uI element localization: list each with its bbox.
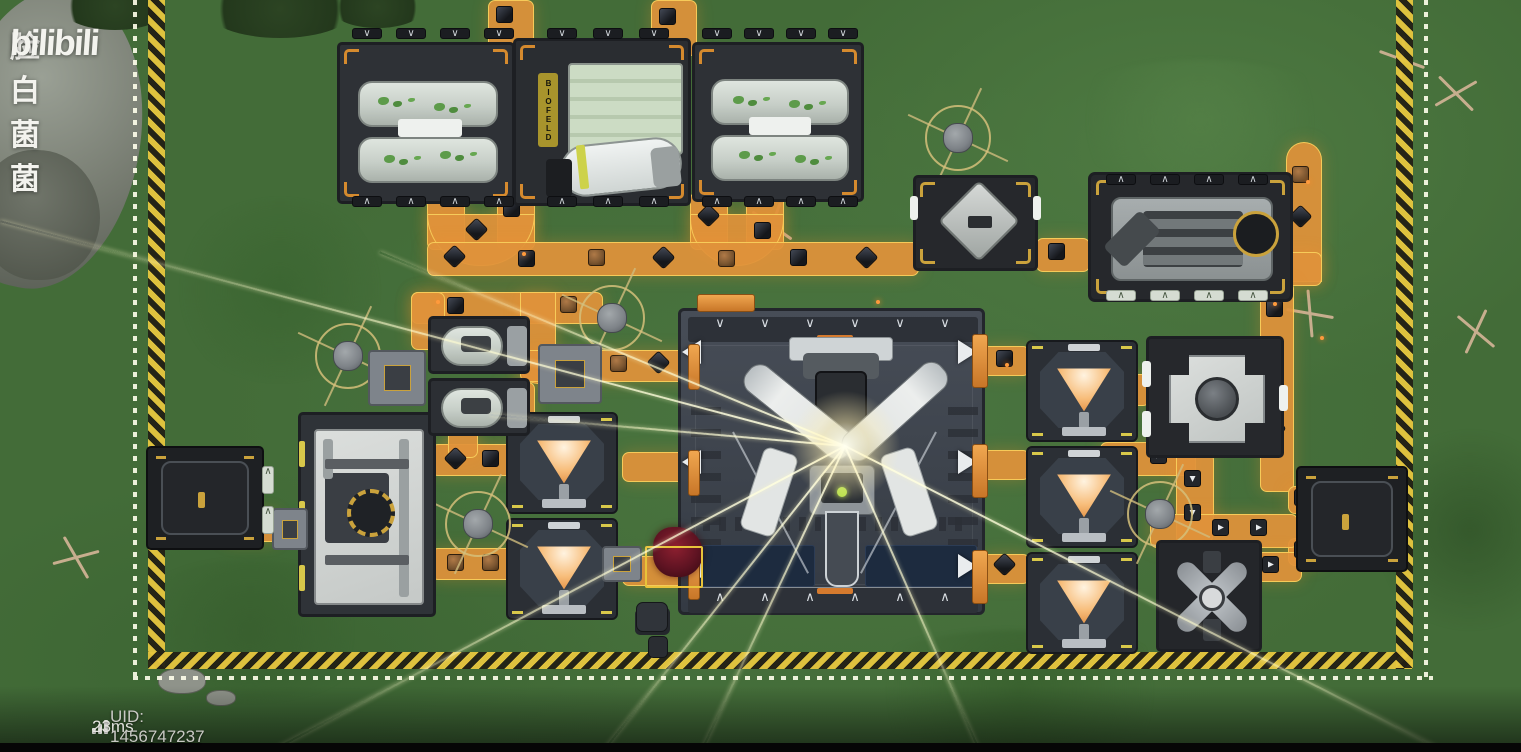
corner-bracket — [920, 249, 935, 264]
corner-tick — [1032, 433, 1043, 436]
chevron-slot: ∧ — [1194, 290, 1224, 301]
io-port[interactable] — [697, 294, 755, 312]
smelter-stem — [559, 484, 569, 500]
armature — [546, 159, 572, 197]
corner-tick — [1121, 645, 1132, 648]
smelter-port — [542, 499, 586, 508]
status-hud: 23ms UID: 1456747237 — [92, 719, 112, 734]
chevron-slot: ∨ — [795, 318, 825, 329]
player-mech[interactable] — [636, 602, 668, 632]
corner-bracket — [842, 49, 857, 64]
crate-item[interactable] — [447, 297, 464, 314]
spark-ember — [1306, 180, 1310, 184]
corner-tick — [512, 524, 523, 527]
corner-tick — [1388, 559, 1398, 562]
vent — [1203, 551, 1221, 573]
spark-ember — [522, 252, 526, 256]
perimeter-dotted-line — [1424, 0, 1428, 680]
machine-hub — [749, 117, 811, 135]
chest-lid — [1311, 481, 1393, 557]
notch — [1169, 423, 1189, 443]
crate-item[interactable] — [518, 250, 535, 267]
plant-sprouts — [739, 151, 750, 159]
chevron-slot: ∧ — [930, 592, 960, 603]
io-port[interactable] — [688, 450, 700, 496]
spark-ember — [1320, 336, 1324, 340]
junction-core — [282, 520, 298, 539]
chevron-slot: ∧ — [593, 196, 623, 207]
corner-bracket — [344, 182, 359, 197]
corner-tick — [244, 537, 254, 540]
chevron-slot: ∧ — [828, 196, 858, 207]
chevron-slot: ∧ — [1194, 174, 1224, 185]
perimeter-dotted-line — [133, 676, 1433, 680]
side-port — [910, 196, 918, 220]
chevron-slot: ∨ — [396, 28, 426, 39]
side-port — [1033, 196, 1041, 220]
belt-arrow-item[interactable]: ▲ — [1184, 470, 1201, 487]
lab-building[interactable] — [1088, 172, 1293, 302]
chevron-slot: ∨ — [750, 318, 780, 329]
chevron-slot: ∨ — [885, 318, 915, 329]
corner-bracket — [493, 182, 508, 197]
turret-head — [333, 341, 363, 371]
crate-item[interactable] — [790, 249, 807, 266]
corner-bracket — [1270, 180, 1285, 195]
notch — [1245, 355, 1265, 375]
accent-strip — [299, 565, 305, 591]
turret-head — [463, 509, 493, 539]
corner-bracket — [1270, 279, 1285, 294]
drone-unit[interactable] — [648, 636, 668, 658]
corner-tick — [244, 456, 254, 459]
end-cap — [507, 388, 527, 428]
corner-tick — [1306, 476, 1316, 479]
corner-tick — [1032, 645, 1043, 648]
cylinder-slot — [461, 398, 491, 414]
side-port — [1142, 411, 1151, 437]
chevron-slot: ∧ — [396, 196, 426, 207]
belt-arrow-item[interactable]: ▲ — [1212, 519, 1229, 536]
smelter-machine[interactable] — [1026, 340, 1138, 442]
chest-lid — [161, 461, 249, 535]
crate-item[interactable] — [496, 6, 513, 23]
spark-ember — [1273, 302, 1277, 306]
junction-core — [384, 365, 411, 391]
plant-tube — [711, 135, 849, 181]
chevron-slot: ∧ — [440, 196, 470, 207]
plant-sprouts — [384, 155, 395, 163]
biofield-label: BIOFELD — [538, 73, 558, 147]
corner-bracket — [520, 184, 535, 199]
smelter-port — [1062, 639, 1106, 648]
storage-chest-left[interactable]: ∧ ∧ — [146, 446, 264, 550]
chevron-slot: ∧ — [1150, 174, 1180, 185]
bilibili-logo: bilibili — [9, 22, 100, 64]
crate-item[interactable] — [482, 450, 499, 467]
chevron-slot: ∨ — [639, 28, 669, 39]
twig — [1438, 75, 1474, 111]
plant-sprouts — [795, 155, 806, 163]
chevron-slot: ∧ — [795, 592, 825, 603]
chevron-slot: ∧ — [1106, 290, 1136, 301]
notch — [1169, 355, 1189, 375]
smelter-stem — [1079, 624, 1089, 640]
corner-bracket — [699, 180, 714, 195]
corner-tick — [1032, 452, 1043, 455]
funnel-slot — [968, 216, 992, 228]
dead-branch — [1457, 315, 1496, 348]
belt-arrow-item[interactable]: ▲ — [1262, 556, 1279, 573]
perimeter-wall-left[interactable] — [148, 0, 165, 668]
chevron-slot: ∧ — [1106, 174, 1136, 185]
smelter-port — [1062, 533, 1106, 542]
latch — [198, 492, 205, 508]
lab-core-circle — [1233, 211, 1279, 257]
assembler-building-left[interactable] — [298, 412, 436, 617]
radar-machine[interactable] — [1156, 540, 1262, 652]
smelter-stem — [1079, 412, 1089, 428]
chest-port: ∧ — [262, 466, 274, 494]
biofield-processor[interactable]: BIOFELD — [513, 38, 691, 206]
uid-value: UID: 1456747237 — [110, 707, 205, 747]
chevron-slot: ∨ — [744, 28, 774, 39]
side-port — [1279, 385, 1288, 411]
chest-port: ∧ — [262, 506, 274, 534]
letterbox-bar — [0, 743, 1521, 752]
corner-tick — [601, 524, 612, 527]
crate-item[interactable] — [1048, 243, 1065, 260]
turret-head — [1145, 499, 1175, 529]
greenhouse-building[interactable] — [692, 42, 864, 202]
conveyor-belt[interactable] — [982, 450, 1030, 480]
chevron-slot: ∧ — [1238, 290, 1268, 301]
smelter-port — [1062, 427, 1106, 436]
corner-tick — [1306, 559, 1316, 562]
lab-rails — [1143, 211, 1243, 267]
game-viewport: ▲▲▲▲▲▲▲▲▲∨∨∨∨∧∧∧∧∨∨∨∧∧∧∨∨∨∨∧∧∧∧∧∧∧∧∧∧∧∧∨… — [0, 0, 1521, 752]
gear-core[interactable] — [347, 489, 395, 537]
storage-chest-right[interactable] — [1296, 466, 1408, 572]
chevron-slot: ∨ — [484, 28, 514, 39]
side-port — [1142, 361, 1151, 387]
plant-sprouts — [733, 96, 744, 104]
ore-item[interactable] — [718, 250, 735, 267]
chevron-slot: ∧ — [547, 196, 577, 207]
latch — [1342, 514, 1349, 530]
chevron-slot: ∨ — [547, 28, 577, 39]
corner-tick — [1121, 558, 1132, 561]
spark-ember — [436, 300, 440, 304]
corner-tick — [1121, 346, 1132, 349]
plant-sprouts — [440, 151, 451, 159]
smelter-stem — [1079, 518, 1089, 534]
corner-bracket — [520, 45, 535, 60]
chevron-slot: ∨ — [705, 318, 735, 329]
dead-branch — [1434, 80, 1477, 107]
corner-bracket — [1016, 182, 1031, 197]
machine-hub — [398, 119, 462, 137]
chevron-slot: ∧ — [702, 196, 732, 207]
corner-tick — [1032, 558, 1043, 561]
plant-sprouts — [789, 100, 800, 108]
turret-head — [943, 123, 973, 153]
assembler-building-right[interactable] — [1146, 336, 1284, 458]
dead-branch — [52, 550, 99, 565]
greenhouse-building[interactable] — [337, 42, 515, 204]
chevron-slot: ∨ — [828, 28, 858, 39]
enemy-selection-box — [645, 546, 703, 588]
corner-bracket — [699, 49, 714, 64]
chevron-slot: ∧ — [639, 196, 669, 207]
ore-item[interactable] — [588, 249, 605, 266]
corner-tick — [1121, 452, 1132, 455]
corner-bracket — [669, 184, 684, 199]
spark-ember — [1005, 363, 1009, 367]
corner-bracket — [669, 45, 684, 60]
chevron-slot: ∧ — [786, 196, 816, 207]
corner-tick — [1388, 476, 1398, 479]
corner-bracket — [920, 182, 935, 197]
corner-tick — [512, 505, 523, 508]
chevron-slot: ∧ — [744, 196, 774, 207]
chevron-slot: ∨ — [352, 28, 382, 39]
smelter-port — [548, 522, 580, 529]
io-port[interactable] — [972, 444, 988, 498]
corner-bracket — [344, 49, 359, 64]
corner-tick — [601, 611, 612, 614]
io-port[interactable] — [972, 334, 988, 388]
capacitor-machine[interactable] — [428, 378, 530, 436]
chevron-slot: ∨ — [702, 28, 732, 39]
perimeter-wall-bottom[interactable] — [148, 652, 1412, 669]
chevron-slot: ∧ — [1150, 290, 1180, 301]
chevron-slot: ∨ — [840, 318, 870, 329]
spark-ember — [876, 300, 880, 304]
chevron-slot: ∨ — [786, 28, 816, 39]
turret-head — [597, 303, 627, 333]
plant-sprouts — [378, 97, 389, 105]
smelter-port — [1068, 344, 1100, 351]
inserter[interactable] — [272, 508, 308, 550]
ore-item[interactable] — [610, 355, 627, 372]
perimeter-dotted-line — [133, 0, 137, 676]
chevron-slot: ∨ — [440, 28, 470, 39]
corner-tick — [601, 418, 612, 421]
chevron-slot: ∨ — [593, 28, 623, 39]
belt-arrow-item[interactable]: ▲ — [1250, 519, 1267, 536]
twig — [1464, 309, 1487, 354]
crate-item[interactable] — [659, 8, 676, 25]
radar-core — [1199, 585, 1225, 611]
corner-bracket — [493, 49, 508, 64]
cross-bar — [325, 459, 409, 469]
corner-tick — [601, 505, 612, 508]
corner-tick — [1121, 433, 1132, 436]
tank-cap — [650, 146, 682, 189]
corner-tick — [156, 456, 166, 459]
corner-tick — [1121, 539, 1132, 542]
laser-flare — [785, 386, 905, 506]
corner-tick — [156, 537, 166, 540]
splitter-machine[interactable] — [913, 175, 1038, 271]
grinder-core[interactable] — [1195, 377, 1239, 421]
io-port[interactable] — [972, 550, 988, 604]
capacitor-machine[interactable] — [428, 316, 530, 374]
accent-strip — [299, 441, 305, 467]
chevron-slot: ∨ — [930, 318, 960, 329]
smelter-port — [1068, 450, 1100, 457]
plant-tube — [358, 137, 498, 183]
corner-bracket — [842, 180, 857, 195]
ore-item[interactable] — [482, 554, 499, 571]
smelter-port — [542, 605, 586, 614]
bottom-shade — [0, 686, 1521, 744]
lower-arm-column — [825, 511, 859, 587]
corner-bracket — [1016, 249, 1031, 264]
notch — [1245, 423, 1265, 443]
chevron-slot: ∧ — [352, 196, 382, 207]
cross-bar — [325, 555, 409, 565]
corner-tick — [512, 611, 523, 614]
corner-tick — [1032, 346, 1043, 349]
chevron-slot: ∧ — [484, 196, 514, 207]
crate-item[interactable] — [754, 222, 771, 239]
chevron-slot: ∧ — [840, 592, 870, 603]
chevron-slot: ∧ — [1238, 174, 1268, 185]
plant-sprouts — [434, 103, 445, 111]
junction-box[interactable] — [368, 350, 426, 406]
